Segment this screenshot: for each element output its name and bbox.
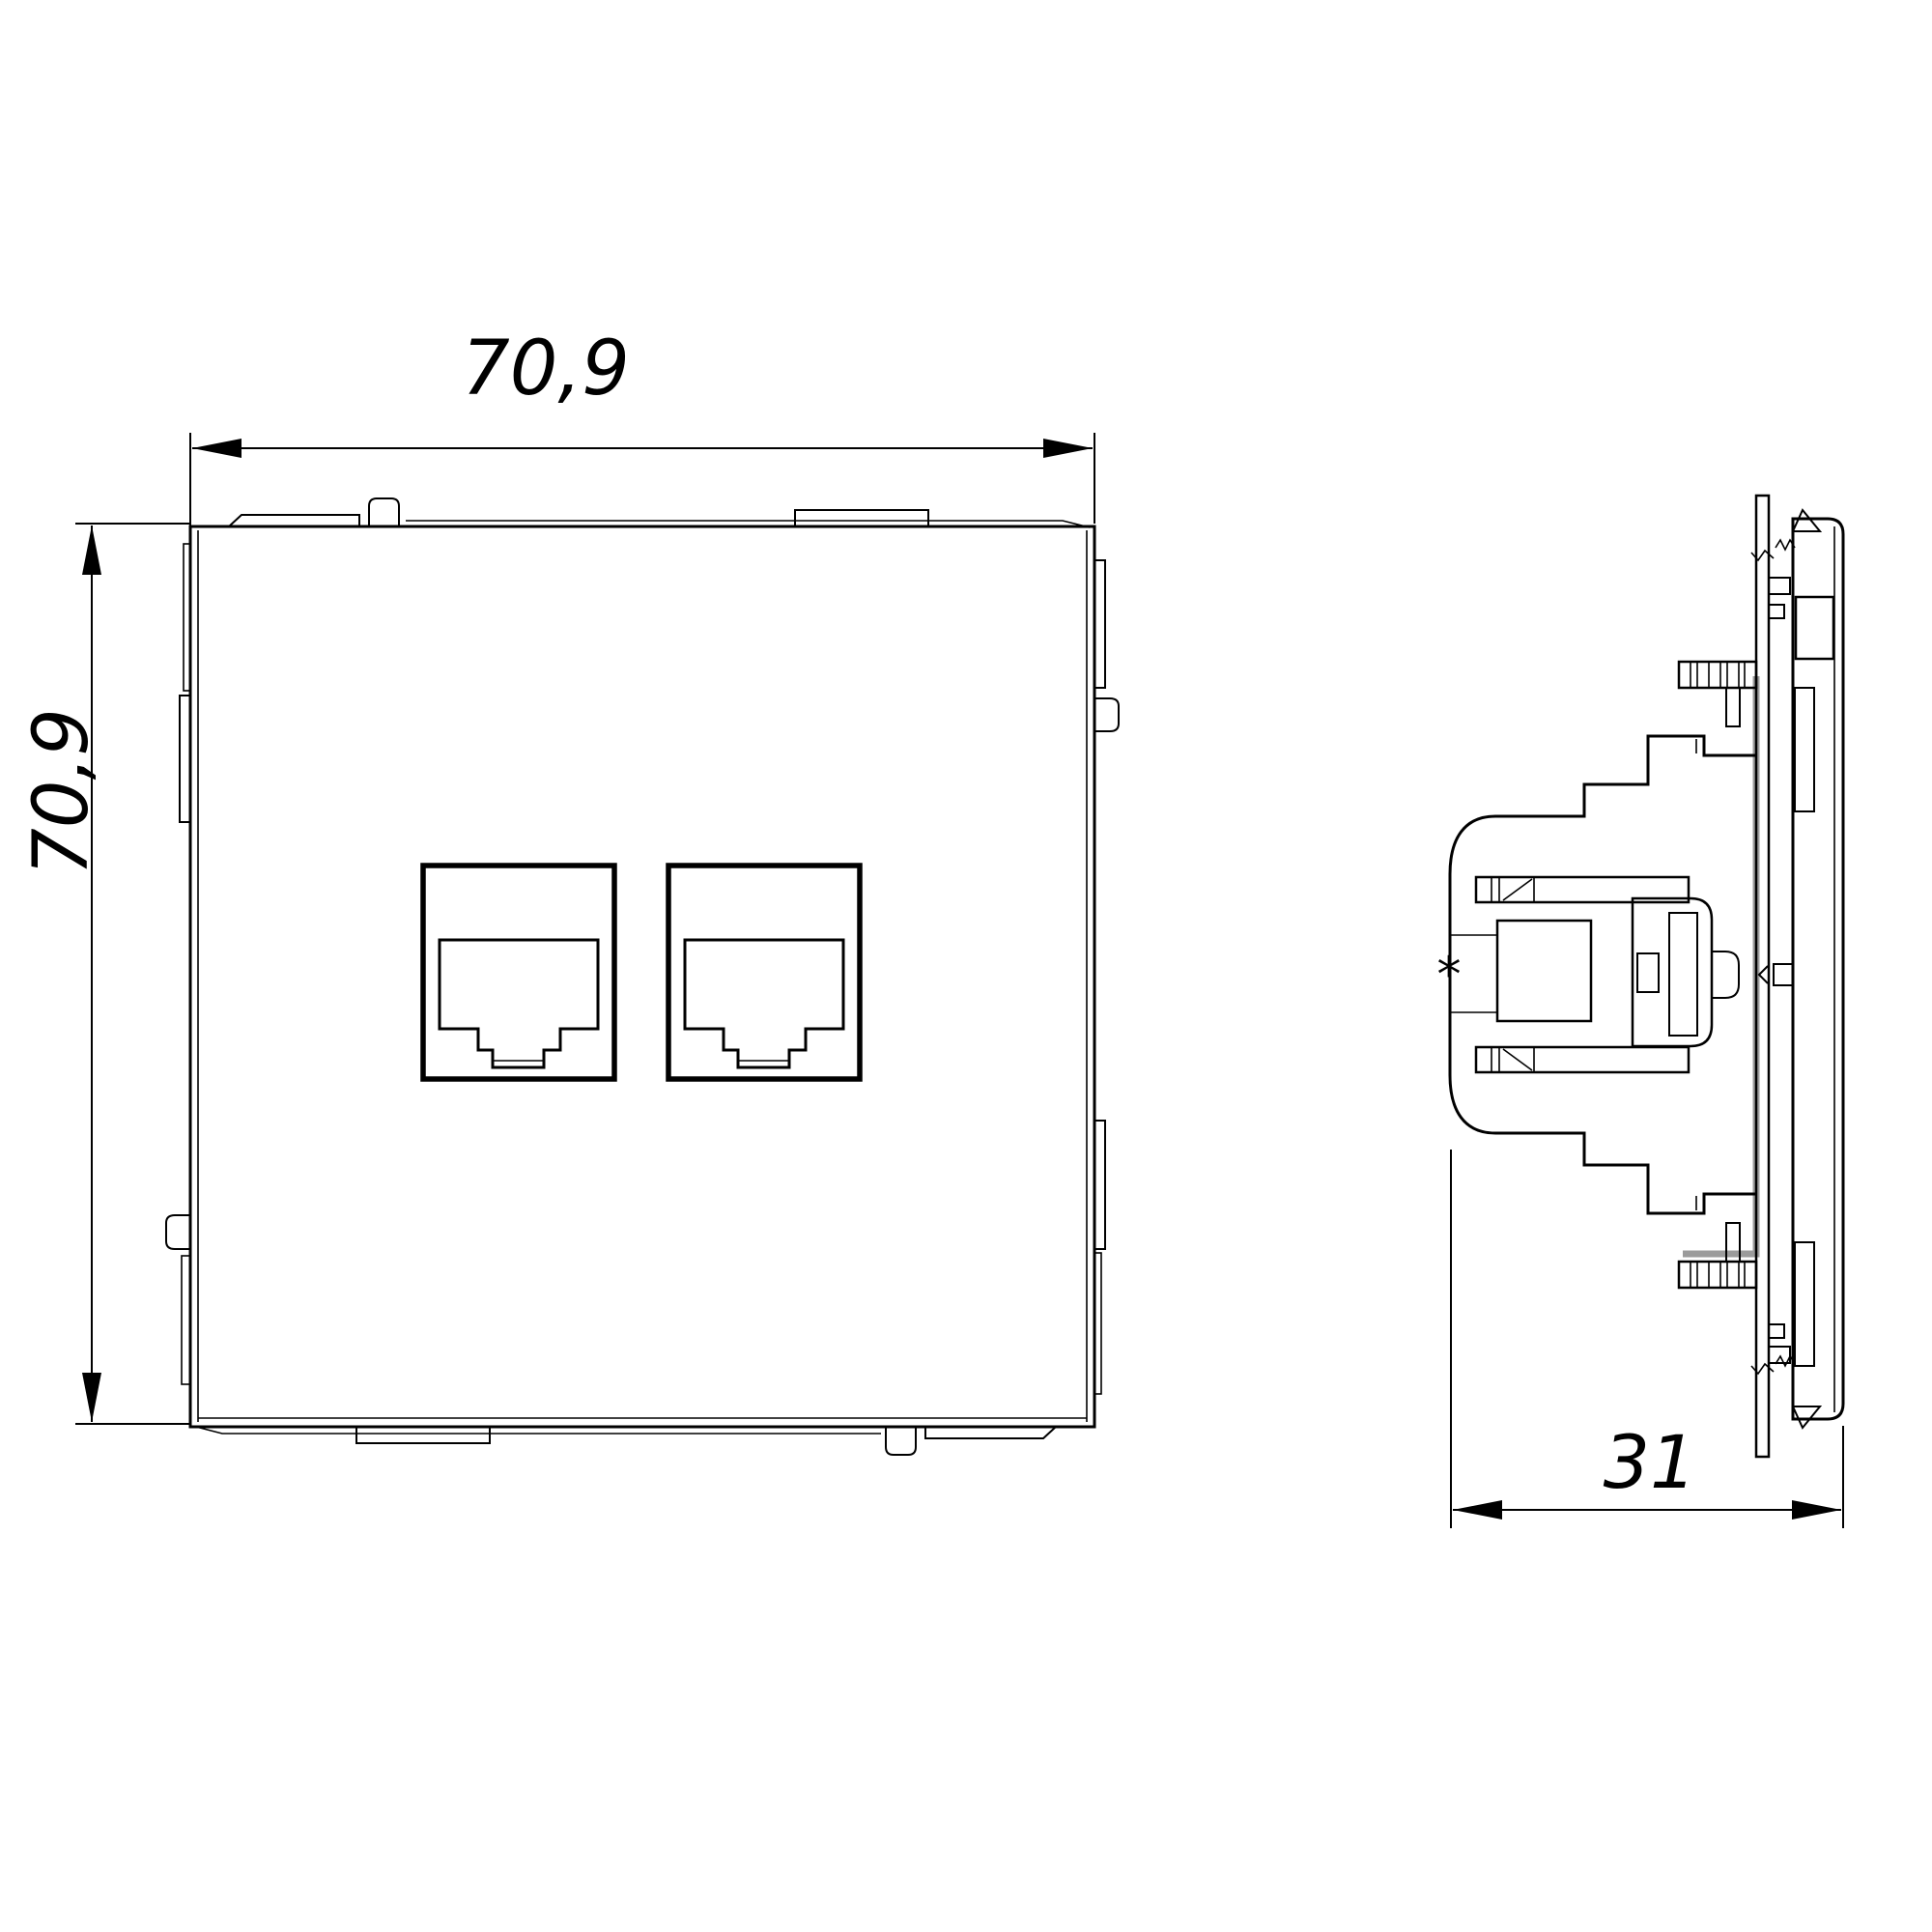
side-view: * 31 (1437, 496, 1844, 1528)
left-edge-knob (166, 1215, 190, 1249)
bottom-edge-raised-block (356, 1427, 490, 1443)
side-mechanism-housing (1450, 736, 1756, 1213)
frame-center-latch-arrow (1759, 966, 1768, 983)
frame-step-block-top-2 (1769, 605, 1784, 618)
lower-claw-teeth (1690, 1262, 1745, 1288)
frame-step-block-bottom-1 (1769, 1347, 1790, 1363)
keystone-nose-tab (1712, 952, 1739, 998)
arrowhead-right (1792, 1500, 1841, 1520)
dimension-front-height-label: 70,9 (18, 708, 105, 876)
lower-arm-hatch (1492, 1047, 1534, 1072)
top-edge-bump (369, 498, 399, 526)
rj45-jack-right-bezel (668, 866, 860, 1079)
module-body-rect (1497, 921, 1591, 1021)
arrowhead-top (82, 526, 101, 575)
left-edge-strip (180, 696, 190, 822)
rj45-jack-left (423, 866, 614, 1079)
lower-arm (1476, 1047, 1689, 1072)
arrowhead-left (1453, 1500, 1502, 1520)
drawing-page: 70,9 70,9 (0, 0, 1932, 1932)
upper-claw-teeth (1690, 662, 1745, 688)
arrowhead-bottom (82, 1373, 101, 1422)
frame-center-latch-block (1774, 964, 1793, 985)
rj45-jack-left-bezel (423, 866, 614, 1079)
frame-step-block-bottom-2 (1769, 1324, 1784, 1338)
cover-plate-outline (1793, 519, 1843, 1419)
front-plate (166, 498, 1119, 1455)
break-mark-top (1751, 551, 1774, 560)
arrowhead-right (1043, 439, 1093, 458)
housing-outline (1450, 736, 1756, 1213)
keystone-holder-inner (1669, 913, 1697, 1036)
bottom-edge-bump (886, 1427, 916, 1455)
cover-plate-upper-rib (1795, 688, 1814, 811)
front-view: 70,9 70,9 (18, 326, 1119, 1455)
cover-plate-pocket (1796, 597, 1833, 659)
reference-mark: * (1437, 947, 1462, 1003)
rj45-jack-left-opening (440, 940, 598, 1067)
upper-arm-hatch (1492, 877, 1534, 902)
technical-drawing: 70,9 70,9 (0, 0, 1932, 1932)
right-edge-strip (1094, 560, 1105, 688)
right-edge-lower-strip (1094, 1121, 1105, 1249)
rj45-jack-right (668, 866, 860, 1079)
keystone-clip-tab (1637, 953, 1659, 992)
cover-plate-top-tooth (1793, 510, 1820, 531)
keystone-holder (1633, 898, 1712, 1046)
front-plate-outline (190, 526, 1094, 1427)
rj45-jack-right-opening (685, 940, 843, 1067)
side-cover-plate (1793, 510, 1843, 1428)
dimension-front-width: 70,9 (190, 326, 1094, 526)
frame-step-block-top-1 (1769, 578, 1790, 594)
right-edge-knob (1094, 698, 1119, 731)
top-edge-raised-block (795, 510, 928, 526)
break-mark-bottom (1751, 1364, 1774, 1374)
dimension-front-height: 70,9 (18, 524, 190, 1424)
dimension-side-depth-label: 31 (1604, 1419, 1697, 1505)
claw-highlight-line (1683, 676, 1756, 1254)
arrowhead-left (192, 439, 241, 458)
top-edge-strip (229, 515, 359, 526)
dimension-front-width-label: 70,9 (462, 326, 630, 412)
cover-plate-bottom-tooth (1793, 1406, 1820, 1428)
cover-plate-lower-rib (1795, 1242, 1814, 1366)
upper-claw-tab (1726, 688, 1740, 726)
bottom-edge-strip (925, 1427, 1056, 1438)
